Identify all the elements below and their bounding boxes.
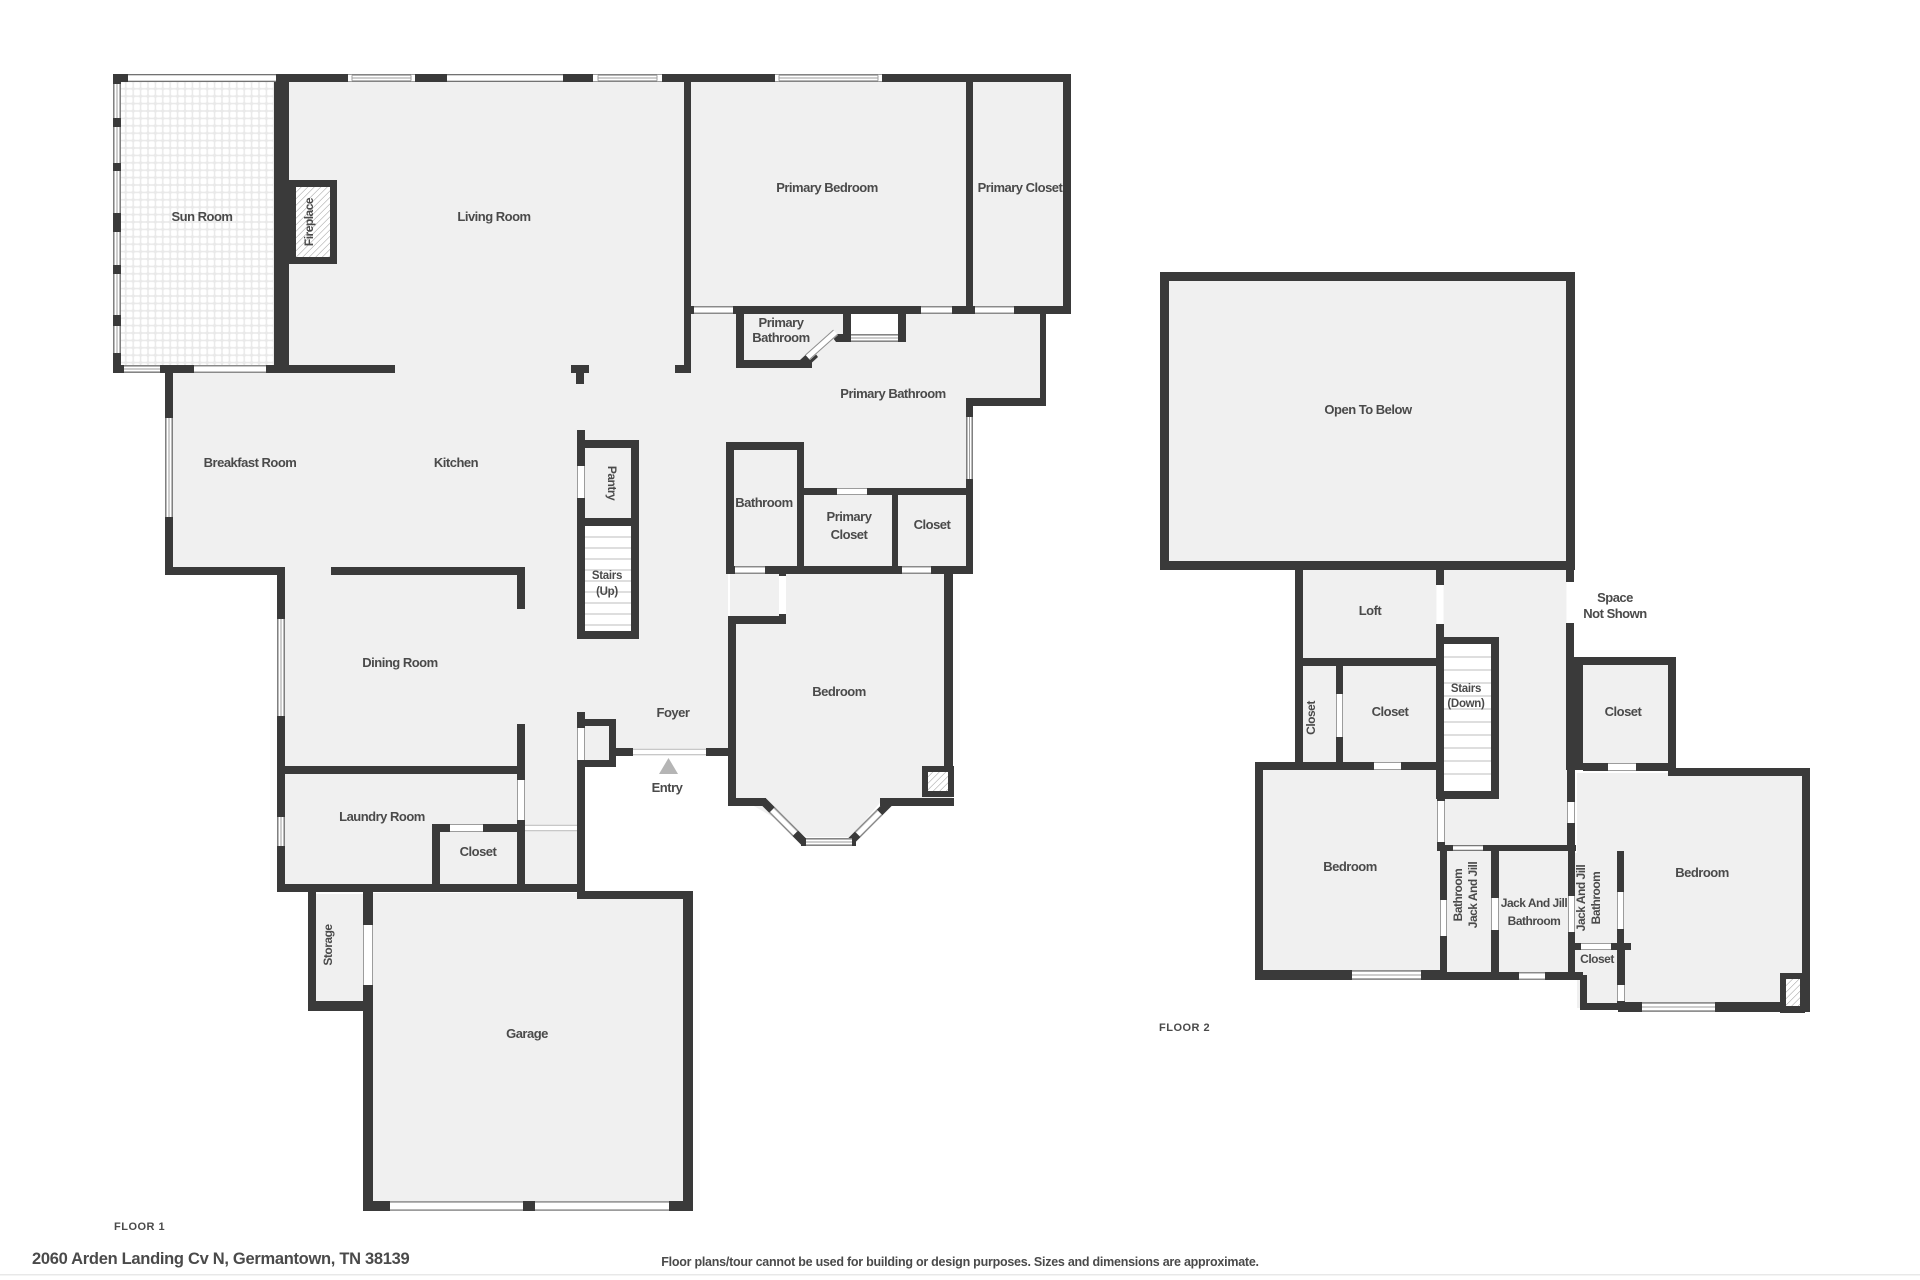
svg-text:Garage: Garage (506, 1026, 548, 1041)
svg-text:Closet: Closet (1304, 701, 1318, 735)
svg-text:Stairs: Stairs (592, 570, 622, 582)
svg-text:2060 Arden Landing Cv N, Germa: 2060 Arden Landing Cv N, Germantown, TN … (32, 1250, 410, 1268)
svg-text:Floor plans/tour cannot be use: Floor plans/tour cannot be used for buil… (661, 1255, 1259, 1269)
svg-text:Stairs: Stairs (1451, 683, 1481, 695)
svg-text:Pantry: Pantry (605, 466, 619, 501)
svg-text:Bedroom: Bedroom (812, 684, 866, 699)
svg-text:Sun Room: Sun Room (172, 209, 233, 224)
svg-text:Laundry Room: Laundry Room (339, 809, 425, 824)
svg-text:(Up): (Up) (596, 586, 618, 598)
svg-text:Bathroom: Bathroom (735, 495, 792, 510)
svg-text:Bathroom: Bathroom (1451, 869, 1465, 922)
svg-text:Foyer: Foyer (657, 705, 690, 720)
svg-text:Primary Bedroom: Primary Bedroom (776, 180, 878, 195)
svg-text:Closet: Closet (460, 844, 498, 859)
svg-text:Closet: Closet (1372, 704, 1410, 719)
svg-text:Bathroom: Bathroom (1589, 872, 1603, 925)
svg-text:Space: Space (1597, 590, 1633, 605)
svg-text:Closet: Closet (1580, 952, 1614, 966)
svg-text:Primary Bathroom: Primary Bathroom (840, 386, 945, 401)
svg-text:Closet: Closet (914, 517, 952, 532)
svg-text:Bathroom: Bathroom (752, 330, 809, 345)
svg-text:Bedroom: Bedroom (1323, 859, 1377, 874)
svg-text:Fireplace: Fireplace (302, 197, 316, 246)
svg-text:Closet: Closet (831, 527, 869, 542)
svg-text:Bedroom: Bedroom (1675, 865, 1729, 880)
svg-text:Not Shown: Not Shown (1583, 606, 1647, 621)
svg-text:Dining Room: Dining Room (362, 655, 437, 670)
svg-text:FLOOR 1: FLOOR 1 (114, 1221, 165, 1233)
svg-text:Breakfast Room: Breakfast Room (204, 455, 297, 470)
svg-text:Loft: Loft (1359, 603, 1383, 618)
svg-text:Primary: Primary (827, 509, 873, 524)
svg-text:Jack And Jill: Jack And Jill (1501, 896, 1568, 910)
svg-text:(Down): (Down) (1447, 698, 1485, 710)
svg-text:Living Room: Living Room (457, 209, 530, 224)
svg-text:Closet: Closet (1605, 704, 1643, 719)
svg-text:Entry: Entry (652, 780, 684, 795)
svg-text:Kitchen: Kitchen (434, 455, 479, 470)
svg-text:Primary: Primary (759, 315, 805, 330)
svg-text:Primary Closet: Primary Closet (978, 180, 1064, 195)
svg-text:FLOOR 2: FLOOR 2 (1159, 1022, 1210, 1034)
svg-text:Open To Below: Open To Below (1324, 402, 1413, 417)
svg-text:Jack And Jill: Jack And Jill (1466, 862, 1480, 929)
svg-text:Bathroom: Bathroom (1508, 914, 1561, 928)
svg-text:Jack And Jill: Jack And Jill (1574, 865, 1588, 932)
svg-text:Storage: Storage (321, 924, 335, 966)
